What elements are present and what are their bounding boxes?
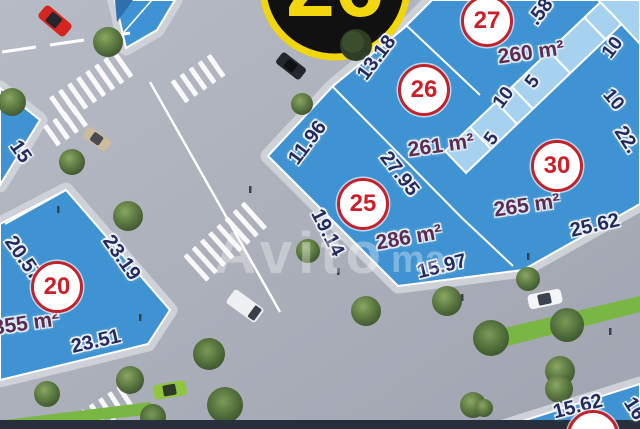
watermark-brand: Avito	[214, 225, 387, 283]
tree-icon	[34, 381, 60, 407]
plot-26-number: 26	[411, 76, 438, 104]
plot-30-number: 30	[544, 152, 571, 180]
plot-30-badge: 30	[531, 140, 583, 192]
tree-icon	[291, 93, 313, 115]
palm-tree-icon	[473, 320, 509, 356]
plot-27-number: 27	[474, 7, 501, 35]
tree-icon	[516, 267, 540, 291]
tree-icon	[116, 366, 144, 394]
tree-icon	[59, 149, 85, 175]
plot-map: 26 15 20.57 23.19 23.51 11.96 13.18 2	[0, 0, 640, 429]
plot-20-badge: 20	[31, 261, 83, 313]
watermark: Avito ma	[214, 225, 446, 283]
plot-20-number: 20	[44, 273, 71, 301]
watermark-suffix: ma	[391, 241, 446, 279]
tree-icon	[432, 286, 462, 316]
tree-icon	[342, 31, 364, 53]
plot-26-badge: 26	[398, 64, 450, 116]
tree-icon	[93, 27, 123, 57]
plot-25-number: 25	[350, 190, 377, 218]
badge-number: 26	[286, 0, 384, 35]
tree-icon	[475, 399, 493, 417]
bottom-border-band	[0, 420, 640, 429]
tree-icon	[113, 201, 143, 231]
palm-tree-icon	[207, 387, 243, 423]
palm-tree-icon	[550, 308, 584, 342]
tree-icon	[351, 296, 381, 326]
palm-tree-icon	[193, 338, 225, 370]
